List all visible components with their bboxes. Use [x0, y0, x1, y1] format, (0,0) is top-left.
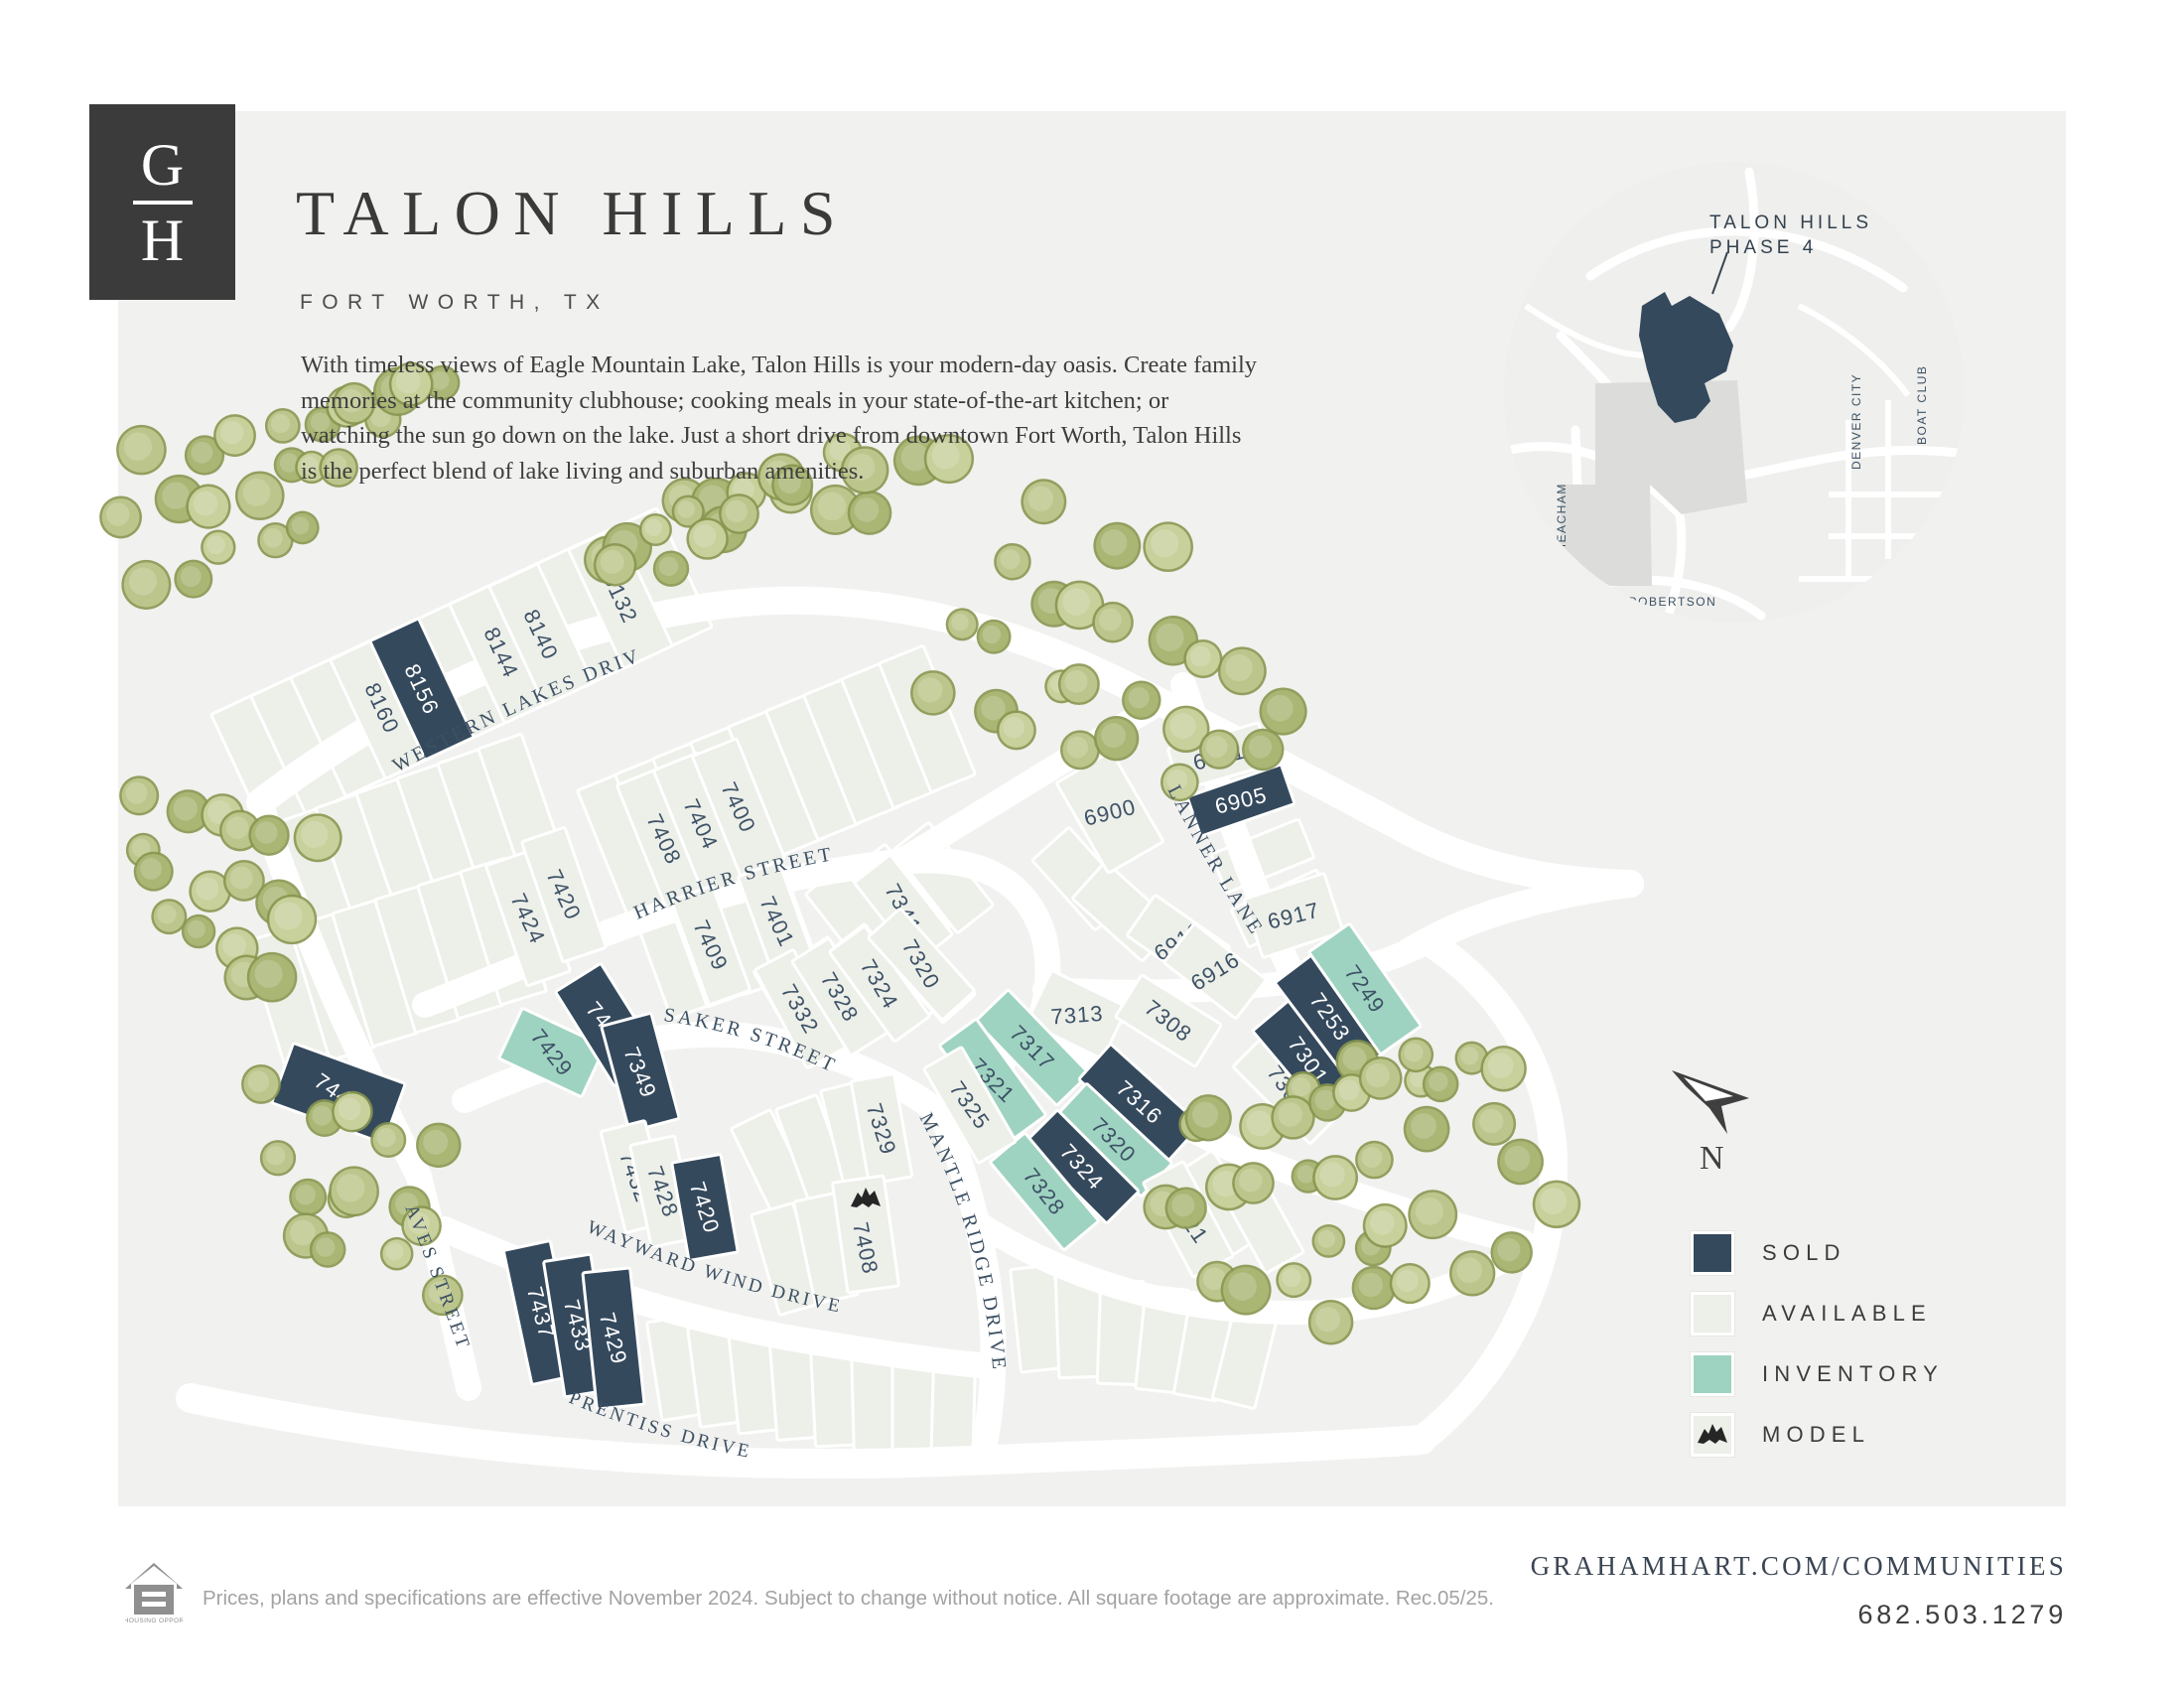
inset-road-boat-club: BOAT CLUB — [1915, 365, 1929, 445]
inset-road-meacham: MEACHAM — [1555, 483, 1569, 554]
legend-label-sold: SOLD — [1762, 1240, 1846, 1266]
legend-row-inventory: INVENTORY — [1691, 1352, 1944, 1396]
tree-icon — [653, 550, 689, 586]
flyer-page: G H TALON HILLS FORT WORTH, TX With time… — [0, 0, 2184, 1688]
tree-icon — [121, 560, 171, 610]
tree-icon — [910, 670, 956, 716]
tree-icon — [1260, 687, 1307, 735]
tree-icon — [332, 1091, 373, 1133]
equal-housing-icon: EQUAL HOUSING OPPORTUNITY — [125, 1563, 183, 1626]
tree-icon — [946, 608, 979, 640]
tree-icon — [1423, 1065, 1459, 1102]
graham-hart-logo: G H — [89, 104, 235, 300]
tree-icon — [639, 513, 672, 546]
footer-contact: GRAHAMHART.COM/COMMUNITIES 682.503.1279 — [1531, 1551, 2067, 1630]
tree-icon — [174, 560, 212, 599]
tree-icon — [1355, 1141, 1394, 1180]
legend-row-sold: SOLD — [1691, 1231, 1944, 1275]
community-description: With timeless views of Eagle Mountain La… — [301, 348, 1259, 489]
available-swatch — [1691, 1292, 1734, 1336]
tree-icon — [186, 485, 230, 529]
tree-icon — [1060, 730, 1100, 770]
inset-road-denver-city: DENVER CITY — [1849, 373, 1863, 470]
tree-icon — [1533, 1181, 1580, 1228]
locator-inset-map: TALON HILLS PHASE 4 MEACHAM ROBERTSON DE… — [1501, 157, 1968, 624]
page-title: TALON HILLS — [296, 177, 849, 250]
tree-icon — [329, 1166, 379, 1216]
tree-icon — [119, 775, 159, 815]
lot-number: 7313 — [1050, 1001, 1105, 1030]
tree-icon — [1232, 1162, 1275, 1204]
north-arrow-icon — [1670, 1068, 1759, 1138]
tree-icon — [1092, 602, 1134, 643]
tree-icon — [310, 1231, 346, 1268]
legend-label-available: AVAILABLE — [1762, 1301, 1932, 1327]
tree-icon — [1490, 1231, 1532, 1273]
tree-icon — [235, 471, 285, 520]
tree-icon — [247, 952, 298, 1003]
tree-icon — [416, 1123, 461, 1168]
tree-icon — [1093, 522, 1141, 570]
logo-letter-h: H — [141, 210, 184, 271]
tree-icon — [1390, 1263, 1431, 1304]
tree-icon — [248, 814, 289, 855]
tree-icon — [116, 425, 167, 476]
tree-icon — [182, 914, 215, 948]
north-label: N — [1700, 1140, 1724, 1178]
tree-icon — [1276, 1262, 1311, 1298]
legend-label-inventory: INVENTORY — [1762, 1361, 1944, 1387]
tree-icon — [294, 813, 342, 862]
tree-icon — [1449, 1250, 1495, 1296]
tree-icon — [241, 1064, 281, 1104]
tree-icon — [1480, 1046, 1526, 1091]
tree-icon — [848, 491, 892, 535]
tree-icon — [1308, 1300, 1354, 1345]
legend-row-available: AVAILABLE — [1691, 1292, 1944, 1336]
tree-icon — [1122, 680, 1160, 719]
tree-icon — [1094, 716, 1139, 761]
legend-label-model: MODEL — [1762, 1422, 1870, 1448]
tree-icon — [213, 414, 256, 457]
tree-icon — [1242, 729, 1284, 771]
inset-label-line2: PHASE 4 — [1709, 237, 1817, 258]
tree-icon — [289, 1179, 327, 1216]
tree-icon — [719, 493, 759, 534]
lot — [852, 1352, 896, 1453]
model-home-icon — [1696, 1423, 1729, 1447]
footer-disclaimer: Prices, plans and specifications are eff… — [203, 1587, 1494, 1611]
tree-icon — [1352, 1266, 1396, 1310]
tree-icon — [265, 408, 301, 444]
tree-icon — [1218, 646, 1267, 695]
inset-roads: TALON HILLS PHASE 4 MEACHAM ROBERTSON DE… — [1501, 162, 1968, 624]
tree-icon — [1497, 1139, 1544, 1186]
tree-icon — [1311, 1224, 1345, 1258]
page-subtitle: FORT WORTH, TX — [300, 291, 610, 315]
tree-icon — [267, 895, 317, 944]
tree-icon — [1363, 1203, 1408, 1248]
tree-icon — [1359, 1056, 1403, 1100]
website-link[interactable]: GRAHAMHART.COM/COMMUNITIES — [1531, 1551, 2067, 1582]
tree-icon — [1199, 730, 1239, 770]
model-swatch — [1691, 1413, 1734, 1457]
tree-icon — [99, 495, 142, 538]
tree-icon — [594, 543, 637, 587]
sold-swatch — [1691, 1231, 1734, 1275]
logo-divider — [133, 201, 193, 205]
tree-icon — [997, 710, 1036, 750]
tree-icon — [1408, 1190, 1457, 1239]
legend-row-model: MODEL — [1691, 1413, 1944, 1457]
tree-icon — [1165, 1187, 1207, 1228]
tree-icon — [1472, 1102, 1516, 1146]
tree-icon — [1398, 1037, 1433, 1072]
lot — [892, 1360, 934, 1460]
tree-icon — [1404, 1106, 1450, 1153]
tree-icon — [201, 530, 235, 565]
tree-icon — [370, 1122, 406, 1158]
inventory-swatch — [1691, 1352, 1734, 1396]
equal-housing-caption: EQUAL HOUSING OPPORTUNITY — [125, 1618, 183, 1624]
tree-icon — [1312, 1155, 1358, 1200]
inset-road-robertson: ROBERTSON — [1628, 595, 1716, 609]
logo-letter-g: G — [141, 134, 184, 196]
tree-icon — [1185, 1094, 1232, 1141]
tree-icon — [977, 620, 1012, 654]
tree-icon — [134, 852, 174, 892]
tree-icon — [1183, 639, 1222, 678]
tree-icon — [151, 899, 187, 934]
tree-icon — [1058, 663, 1100, 705]
tree-icon — [1143, 521, 1193, 572]
phone-number[interactable]: 682.503.1279 — [1531, 1600, 2067, 1630]
legend: SOLD AVAILABLE INVENTORY MODEL — [1691, 1231, 1944, 1474]
tree-icon — [994, 543, 1031, 581]
tree-icon — [260, 1140, 296, 1176]
inset-label-line1: TALON HILLS — [1709, 212, 1872, 233]
tree-icon — [380, 1237, 414, 1271]
tree-icon — [286, 511, 320, 545]
tree-icon — [1221, 1265, 1272, 1316]
lot-7420: 7420 — [672, 1154, 739, 1260]
